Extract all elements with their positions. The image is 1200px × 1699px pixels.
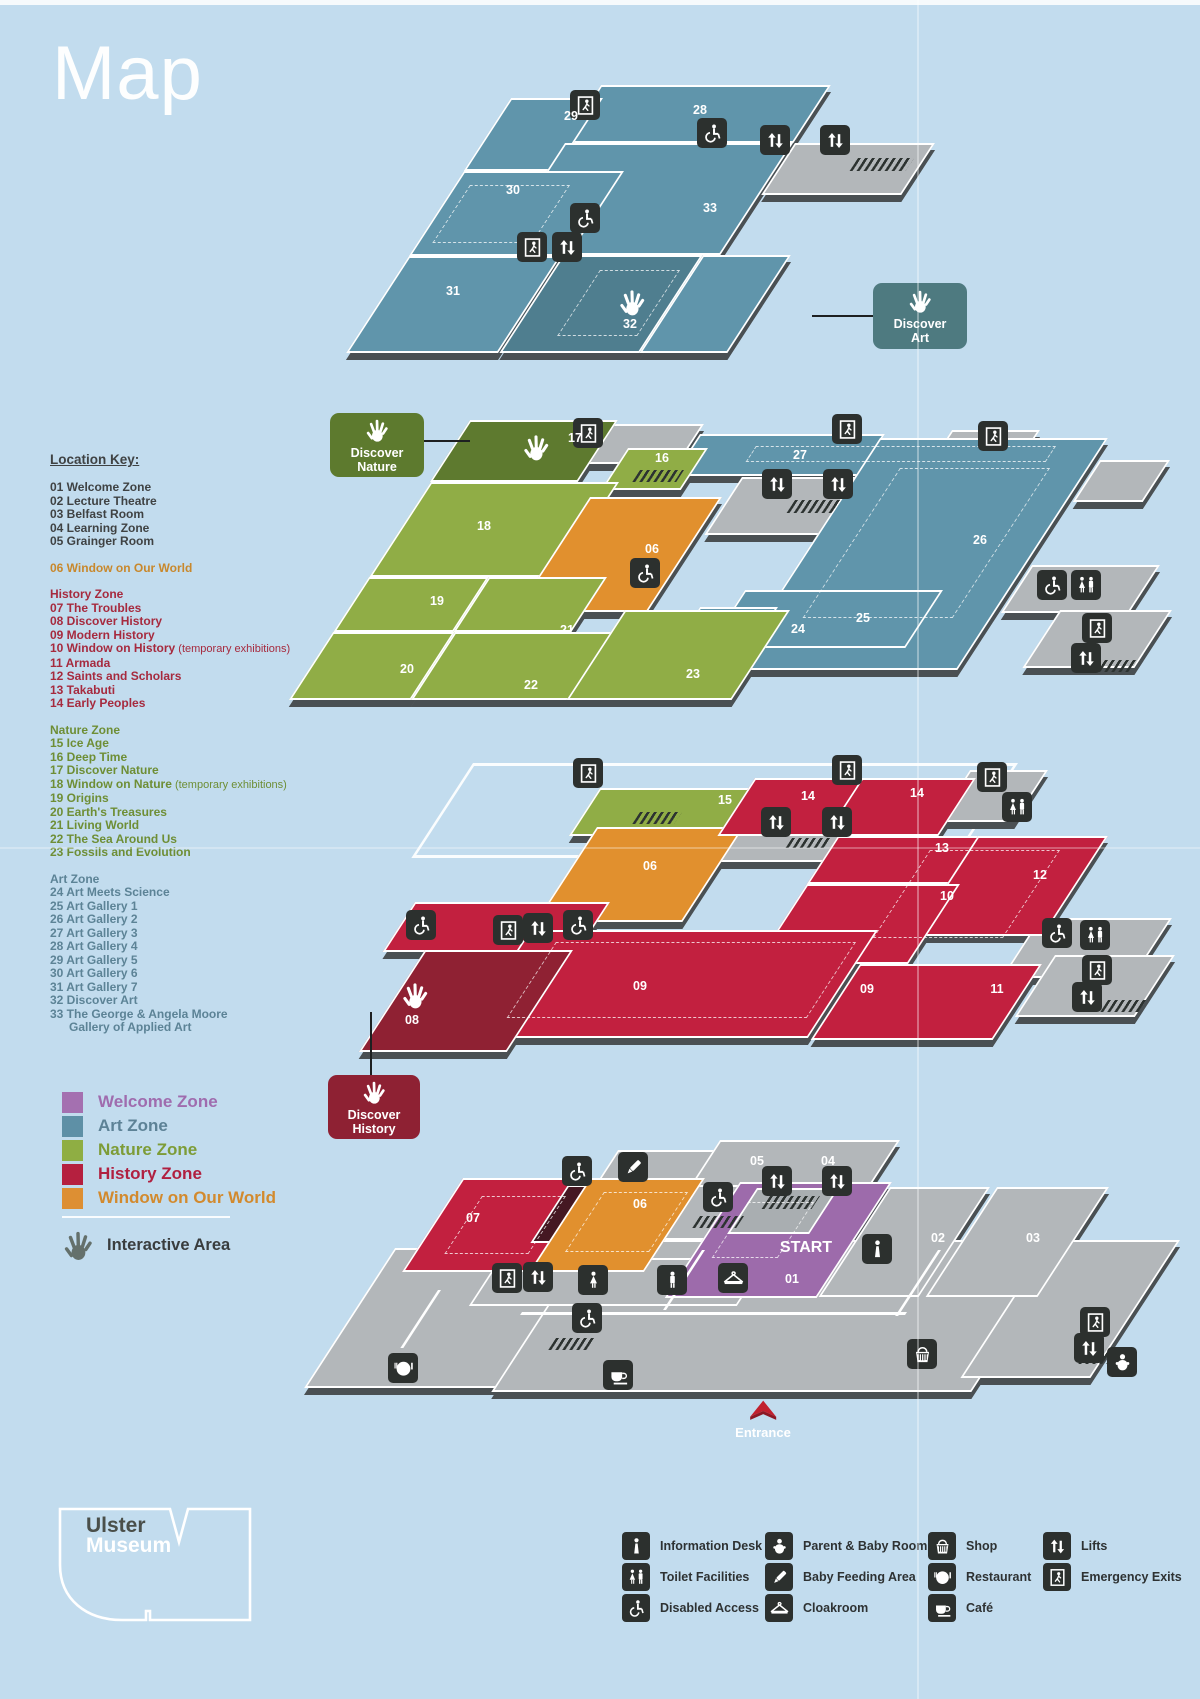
zone-color-swatch xyxy=(62,1092,83,1113)
facility-legend-label: Café xyxy=(966,1601,993,1615)
lifts-icon xyxy=(823,469,853,499)
toilets-icon xyxy=(622,1563,650,1591)
disabled-icon xyxy=(562,1156,592,1186)
floor-slab xyxy=(586,424,704,464)
floor-slab xyxy=(587,1150,743,1198)
floor-slab xyxy=(359,950,573,1052)
floor-slab xyxy=(383,902,610,952)
floor-slab xyxy=(460,930,878,1038)
floor-slab xyxy=(567,610,790,700)
interactive-hand-icon xyxy=(363,416,391,444)
exit-icon xyxy=(977,762,1007,792)
exit-icon xyxy=(1082,955,1112,985)
location-key-item: 14 Early Peoples xyxy=(50,697,300,711)
lifts-icon xyxy=(762,1166,792,1196)
floor-slab xyxy=(659,1185,777,1240)
floor-slab xyxy=(529,1178,705,1272)
room-label-23: 23 xyxy=(686,667,700,681)
exit-icon xyxy=(517,232,547,262)
restaurant-icon xyxy=(928,1563,956,1591)
floor-slab xyxy=(530,1185,588,1243)
restaurant-icon xyxy=(388,1353,418,1383)
zone-color-swatch xyxy=(62,1164,83,1185)
location-key-item: 30 Art Gallery 6 xyxy=(50,967,300,981)
zone-legend: Welcome ZoneArt ZoneNature ZoneHistory Z… xyxy=(62,1090,276,1210)
floor-slab xyxy=(915,430,1040,487)
discover-history-callout: DiscoverHistory xyxy=(328,1075,420,1139)
exit-icon xyxy=(570,90,600,120)
floor-slab xyxy=(1022,610,1172,668)
callout-connector xyxy=(424,440,470,442)
logo-line1: Ulster xyxy=(86,1515,146,1536)
floor-slab xyxy=(1015,955,1175,1017)
facility-legend-label: Information Desk xyxy=(660,1539,762,1553)
location-key-group: Nature Zone15 Ice Age16 Deep Time17 Disc… xyxy=(50,724,300,860)
location-key-item: 18 Window on Nature (temporary exhibitio… xyxy=(50,778,300,793)
stairs-hatch xyxy=(850,158,914,171)
baby-icon xyxy=(765,1532,793,1560)
disabled-icon xyxy=(563,910,593,940)
facility-legend-item: Toilet Facilities xyxy=(622,1563,749,1591)
zone-color-swatch xyxy=(62,1188,83,1209)
room-label-31: 31 xyxy=(446,284,460,298)
room-label-30: 30 xyxy=(506,183,520,197)
floor-slab xyxy=(704,477,860,535)
room-label-03: 03 xyxy=(1026,1231,1040,1245)
disabled-icon xyxy=(572,1303,602,1333)
facility-legend-item: Cloakroom xyxy=(765,1594,868,1622)
floor-slab xyxy=(411,632,625,700)
cafe-icon xyxy=(603,1360,633,1390)
stairs-hatch xyxy=(1100,1000,1148,1012)
floor-slab xyxy=(1073,460,1170,502)
location-key-item: 17 Discover Nature xyxy=(50,764,300,778)
floor-slab xyxy=(464,98,603,171)
exit-icon xyxy=(832,755,862,785)
interactive-hand-icon xyxy=(399,979,431,1011)
stairs-hatch xyxy=(632,812,682,824)
room-label-05: 05 xyxy=(750,1154,764,1168)
wall-line xyxy=(400,1290,441,1348)
room-label-16: 16 xyxy=(655,451,669,465)
logo-outline xyxy=(50,1506,256,1626)
floor-slab xyxy=(960,1240,1180,1378)
floor-slab xyxy=(926,1187,1109,1297)
location-key-item-suffix: (temporary exhibitions) xyxy=(172,779,287,791)
location-key: Location Key: 01 Welcome Zone02 Lecture … xyxy=(50,452,300,1048)
dashed-partition xyxy=(432,185,570,243)
cloak-icon xyxy=(718,1263,748,1293)
cafe-icon xyxy=(928,1594,956,1622)
location-key-item: 22 The Sea Around Us xyxy=(50,833,300,847)
stairs-hatch xyxy=(692,1216,744,1228)
room-label-06: 06 xyxy=(643,859,657,873)
room-label-28: 28 xyxy=(693,103,707,117)
zone-color-swatch xyxy=(62,1140,83,1161)
location-key-item: 28 Art Gallery 4 xyxy=(50,940,300,954)
floor-slab xyxy=(535,827,744,922)
zone-legend-label: Welcome Zone xyxy=(98,1092,218,1112)
room-label-01: 01 xyxy=(785,1272,799,1286)
exit-icon xyxy=(492,1263,522,1293)
scan-edge xyxy=(0,0,1200,5)
location-key-item: 32 Discover Art xyxy=(50,994,300,1008)
floor-slab xyxy=(492,143,793,255)
location-key-zone-header: Nature Zone xyxy=(50,724,300,738)
discover-art-callout: DiscoverArt xyxy=(873,283,967,349)
floor-slab xyxy=(409,171,624,256)
museum-map-page: Map Location Key: 01 Welcome Zone02 Lect… xyxy=(0,0,1200,1699)
floor-slab xyxy=(601,448,708,490)
exit-icon xyxy=(493,915,523,945)
zone-legend-row: Nature Zone xyxy=(62,1138,276,1162)
location-key-item: 09 Modern History xyxy=(50,629,300,643)
callout-label: History xyxy=(352,1122,395,1136)
lifts-icon xyxy=(523,913,553,943)
facility-legend-item: Emergency Exits xyxy=(1043,1563,1182,1591)
facility-legend-label: Parent & Baby Room xyxy=(803,1539,927,1553)
room-label-09: 09 xyxy=(633,979,647,993)
dashed-partition xyxy=(507,942,856,1018)
toilets-icon xyxy=(1080,920,1110,950)
toilet-m-icon xyxy=(657,1265,687,1295)
exit-icon xyxy=(1043,1563,1071,1591)
floor-slab xyxy=(453,577,607,632)
room-label-19: 19 xyxy=(430,594,444,608)
discover-nature-callout: DiscoverNature xyxy=(330,413,424,477)
lifts-icon xyxy=(822,1166,852,1196)
floor-slab xyxy=(430,420,618,482)
location-key-item: 27 Art Gallery 3 xyxy=(50,927,300,941)
ulster-museum-logo: Ulster Museum xyxy=(50,1506,256,1626)
callout-label: Discover xyxy=(894,317,947,331)
floor-slab xyxy=(469,1258,768,1306)
zone-legend-row: Art Zone xyxy=(62,1114,276,1138)
location-key-item-suffix: (temporary exhibitions) xyxy=(175,643,290,655)
interactive-hand-icon xyxy=(520,431,552,463)
floor-slab xyxy=(289,632,455,700)
zone-legend-row: Window on Our World xyxy=(62,1186,276,1210)
callout-label: Art xyxy=(911,331,929,345)
feeding-icon xyxy=(618,1152,648,1182)
fold-crease xyxy=(917,0,919,1699)
room-label-29: 29 xyxy=(564,109,578,123)
dashed-partition xyxy=(565,1192,688,1252)
location-key-item-line2: Gallery of Applied Art xyxy=(50,1021,300,1035)
location-key-item: 25 Art Gallery 1 xyxy=(50,900,300,914)
room-label-04: 04 xyxy=(821,1154,835,1168)
location-key-item: 06 Window on Our World xyxy=(50,562,300,576)
zone-legend-row: History Zone xyxy=(62,1162,276,1186)
location-key-group: 01 Welcome Zone02 Lecture Theatre03 Belf… xyxy=(50,481,300,549)
info-icon xyxy=(862,1234,892,1264)
cloak-icon xyxy=(765,1594,793,1622)
disabled-icon xyxy=(1037,570,1067,600)
location-key-item: 33 The George & Angela Moore xyxy=(50,1008,300,1022)
zone-legend-label: Art Zone xyxy=(98,1116,168,1136)
floor-slab xyxy=(639,255,791,353)
zone-legend-label: Nature Zone xyxy=(98,1140,197,1160)
location-key-group: 06 Window on Our World xyxy=(50,562,300,576)
room-label-START: START xyxy=(780,1239,832,1257)
floor-slab xyxy=(1001,918,1172,978)
room-label-22: 22 xyxy=(524,678,538,692)
lifts-icon xyxy=(1074,1333,1104,1363)
facility-legend-label: Lifts xyxy=(1081,1539,1107,1553)
facility-legend-label: Shop xyxy=(966,1539,997,1553)
lifts-icon xyxy=(822,807,852,837)
exit-icon xyxy=(978,421,1008,451)
floor-slab xyxy=(811,964,1042,1040)
room-label-06: 06 xyxy=(633,1197,647,1211)
room-label-08: 08 xyxy=(405,1013,419,1027)
location-key-item: 29 Art Gallery 5 xyxy=(50,954,300,968)
floor-slab-outline xyxy=(411,763,1018,858)
disabled-icon xyxy=(406,910,436,940)
room-label-15: 15 xyxy=(718,793,732,807)
floor-slab xyxy=(824,778,976,836)
room-label-33: 33 xyxy=(703,201,717,215)
room-label-26: 26 xyxy=(973,533,987,547)
stairs-hatch xyxy=(762,1196,820,1209)
room-label-07: 07 xyxy=(466,1211,480,1225)
toilet-f-icon xyxy=(578,1265,608,1295)
location-key-item: 31 Art Gallery 7 xyxy=(50,981,300,995)
callout-label: Nature xyxy=(357,460,397,474)
shop-icon xyxy=(907,1339,937,1369)
wall-line xyxy=(663,1250,705,1310)
room-label-18: 18 xyxy=(477,519,491,533)
location-key-item: 05 Grainger Room xyxy=(50,535,300,549)
location-key-item: 03 Belfast Room xyxy=(50,508,300,522)
facility-legend-label: Cloakroom xyxy=(803,1601,868,1615)
exit-icon xyxy=(573,758,603,788)
lifts-icon xyxy=(761,807,791,837)
location-key-item: 02 Lecture Theatre xyxy=(50,495,300,509)
floor-slab xyxy=(515,497,722,612)
exit-icon xyxy=(832,414,862,444)
floor-slab xyxy=(689,1140,900,1188)
floor-slab xyxy=(807,836,980,884)
lifts-icon xyxy=(1043,1532,1071,1560)
facility-legend-label: Toilet Facilities xyxy=(660,1570,749,1584)
room-label-06: 06 xyxy=(645,542,659,556)
fold-crease xyxy=(0,847,1200,849)
stairs-hatch xyxy=(787,500,843,513)
callout-connector xyxy=(370,1012,372,1075)
callout-label: Discover xyxy=(351,446,404,460)
location-key-item: 24 Art Meets Science xyxy=(50,886,300,900)
lifts-icon xyxy=(1072,982,1102,1012)
room-label-12: 12 xyxy=(1033,868,1047,882)
location-key-zone-header: History Zone xyxy=(50,588,300,602)
floor-slab xyxy=(569,788,814,836)
shop-icon xyxy=(928,1532,956,1560)
floor-slab xyxy=(346,256,561,353)
facility-legend-item: Restaurant xyxy=(928,1563,1031,1591)
disabled-icon xyxy=(703,1182,733,1212)
location-key-heading: Location Key: xyxy=(50,452,300,467)
facility-legend-label: Emergency Exits xyxy=(1081,1570,1182,1584)
facility-legend-label: Restaurant xyxy=(966,1570,1031,1584)
dashed-partition xyxy=(873,850,1060,938)
interactive-hand-icon xyxy=(906,287,934,315)
zone-legend-row: Welcome Zone xyxy=(62,1090,276,1114)
room-label-20: 20 xyxy=(400,662,414,676)
toilets-icon xyxy=(1002,792,1032,822)
location-key-item: 21 Living World xyxy=(50,819,300,833)
room-label-32: 32 xyxy=(623,317,637,331)
location-key-zone-header: Art Zone xyxy=(50,873,300,887)
location-key-item: 11 Armada xyxy=(50,657,300,671)
callout-connector xyxy=(812,315,873,317)
lifts-icon xyxy=(820,125,850,155)
room-label-21: 21 xyxy=(560,623,574,637)
location-key-item: 26 Art Gallery 2 xyxy=(50,913,300,927)
room-label-17: 17 xyxy=(568,431,582,445)
floor-slab xyxy=(402,1178,593,1272)
facility-legend-item: Parent & Baby Room xyxy=(765,1532,927,1560)
zone-legend-label: History Zone xyxy=(98,1164,202,1184)
stairs-hatch xyxy=(632,470,684,482)
facility-legend-item: Shop xyxy=(928,1532,997,1560)
floor-slab xyxy=(1001,565,1160,613)
interactive-area-label: Interactive Area xyxy=(107,1236,230,1255)
exit-icon xyxy=(1082,613,1112,643)
legend-divider xyxy=(62,1216,230,1218)
location-key-item: 19 Origins xyxy=(50,792,300,806)
room-label-10: 10 xyxy=(940,889,954,903)
disabled-icon xyxy=(622,1594,650,1622)
room-label-14: 14 xyxy=(801,789,815,803)
dashed-partition xyxy=(746,446,1056,462)
floor-slab xyxy=(936,770,1048,822)
floor-slab xyxy=(563,85,831,143)
info-icon xyxy=(622,1532,650,1560)
location-key-item: 20 Earth's Treasures xyxy=(50,806,300,820)
facility-legend-item: Disabled Access xyxy=(622,1594,759,1622)
floor-slab xyxy=(304,1248,610,1388)
disabled-icon xyxy=(630,558,660,588)
location-key-item: 04 Learning Zone xyxy=(50,522,300,536)
facility-legend-label: Baby Feeding Area xyxy=(803,1570,916,1584)
room-label-24: 24 xyxy=(791,622,805,636)
floor-slab xyxy=(755,884,960,964)
floor-slab xyxy=(707,590,943,648)
interactive-hand-icon xyxy=(60,1226,96,1264)
lifts-icon xyxy=(523,1262,553,1292)
floor-slab xyxy=(717,778,905,836)
dashed-partition xyxy=(557,270,680,336)
dashed-partition xyxy=(712,1202,814,1258)
disabled-icon xyxy=(1042,918,1072,948)
lifts-icon xyxy=(552,232,582,262)
location-key-item: 10 Window on History (temporary exhibiti… xyxy=(50,642,300,657)
floor-slab xyxy=(499,255,703,353)
baby-icon xyxy=(1107,1347,1137,1377)
entrance-arrow-icon xyxy=(743,1398,783,1424)
facility-legend-item: Café xyxy=(928,1594,993,1622)
facility-legend-item: Baby Feeding Area xyxy=(765,1563,916,1591)
interactive-hand-icon xyxy=(360,1078,388,1106)
location-key-group: Art Zone24 Art Meets Science25 Art Galle… xyxy=(50,873,300,1035)
facility-legend-label: Disabled Access xyxy=(660,1601,759,1615)
floor-slab xyxy=(819,1187,990,1297)
stairs-hatch xyxy=(1090,660,1138,672)
interactive-area-legend: Interactive Area xyxy=(60,1226,230,1264)
location-key-item: 16 Deep Time xyxy=(50,751,300,765)
zone-color-swatch xyxy=(62,1116,83,1137)
room-label-25: 25 xyxy=(856,611,870,625)
location-key-item: 01 Welcome Zone xyxy=(50,481,300,495)
floor-slab xyxy=(673,434,885,476)
lifts-icon xyxy=(760,125,790,155)
toilets-icon xyxy=(1071,570,1101,600)
lifts-icon xyxy=(762,469,792,499)
floor-slab xyxy=(913,836,1108,936)
floor-slab xyxy=(761,143,935,195)
room-label-27: 27 xyxy=(793,448,807,462)
floor-slab xyxy=(727,1188,839,1234)
location-key-item: 13 Takabuti xyxy=(50,684,300,698)
disabled-icon xyxy=(570,203,600,233)
floor-slab xyxy=(665,1182,892,1298)
wall-line xyxy=(520,1312,907,1315)
facility-legend-item: Information Desk xyxy=(622,1532,762,1560)
dashed-partition xyxy=(444,1196,566,1254)
floor-slab xyxy=(369,482,619,577)
entrance-marker: Entrance xyxy=(735,1398,791,1440)
floor-slab xyxy=(670,607,778,653)
room-label-11: 11 xyxy=(990,982,1003,996)
zone-legend-label: Window on Our World xyxy=(98,1188,276,1208)
stairs-hatch xyxy=(1078,1352,1130,1364)
dashed-partition xyxy=(803,468,1050,618)
interactive-hand-icon xyxy=(616,286,648,318)
location-key-group: History Zone07 The Troubles08 Discover H… xyxy=(50,588,300,711)
page-title: Map xyxy=(52,30,203,117)
exit-icon xyxy=(1080,1307,1110,1337)
location-key-item: 08 Discover History xyxy=(50,615,300,629)
floor-slab xyxy=(491,1240,1070,1392)
floor-slab xyxy=(333,577,489,632)
location-key-item: 07 The Troubles xyxy=(50,602,300,616)
facility-legend-item: Lifts xyxy=(1043,1532,1107,1560)
disabled-icon xyxy=(697,118,727,148)
exit-icon xyxy=(573,418,603,448)
location-key-item: 15 Ice Age xyxy=(50,737,300,751)
entrance-label: Entrance xyxy=(735,1425,791,1440)
feeding-icon xyxy=(765,1563,793,1591)
logo-line2: Museum xyxy=(86,1535,171,1556)
lifts-icon xyxy=(1071,643,1101,673)
room-label-09: 09 xyxy=(860,982,874,996)
callout-label: Discover xyxy=(348,1108,401,1122)
location-key-item: 12 Saints and Scholars xyxy=(50,670,300,684)
room-label-02: 02 xyxy=(931,1231,945,1245)
location-key-list: 01 Welcome Zone02 Lecture Theatre03 Belf… xyxy=(50,481,300,1035)
stairs-hatch xyxy=(548,1338,596,1350)
